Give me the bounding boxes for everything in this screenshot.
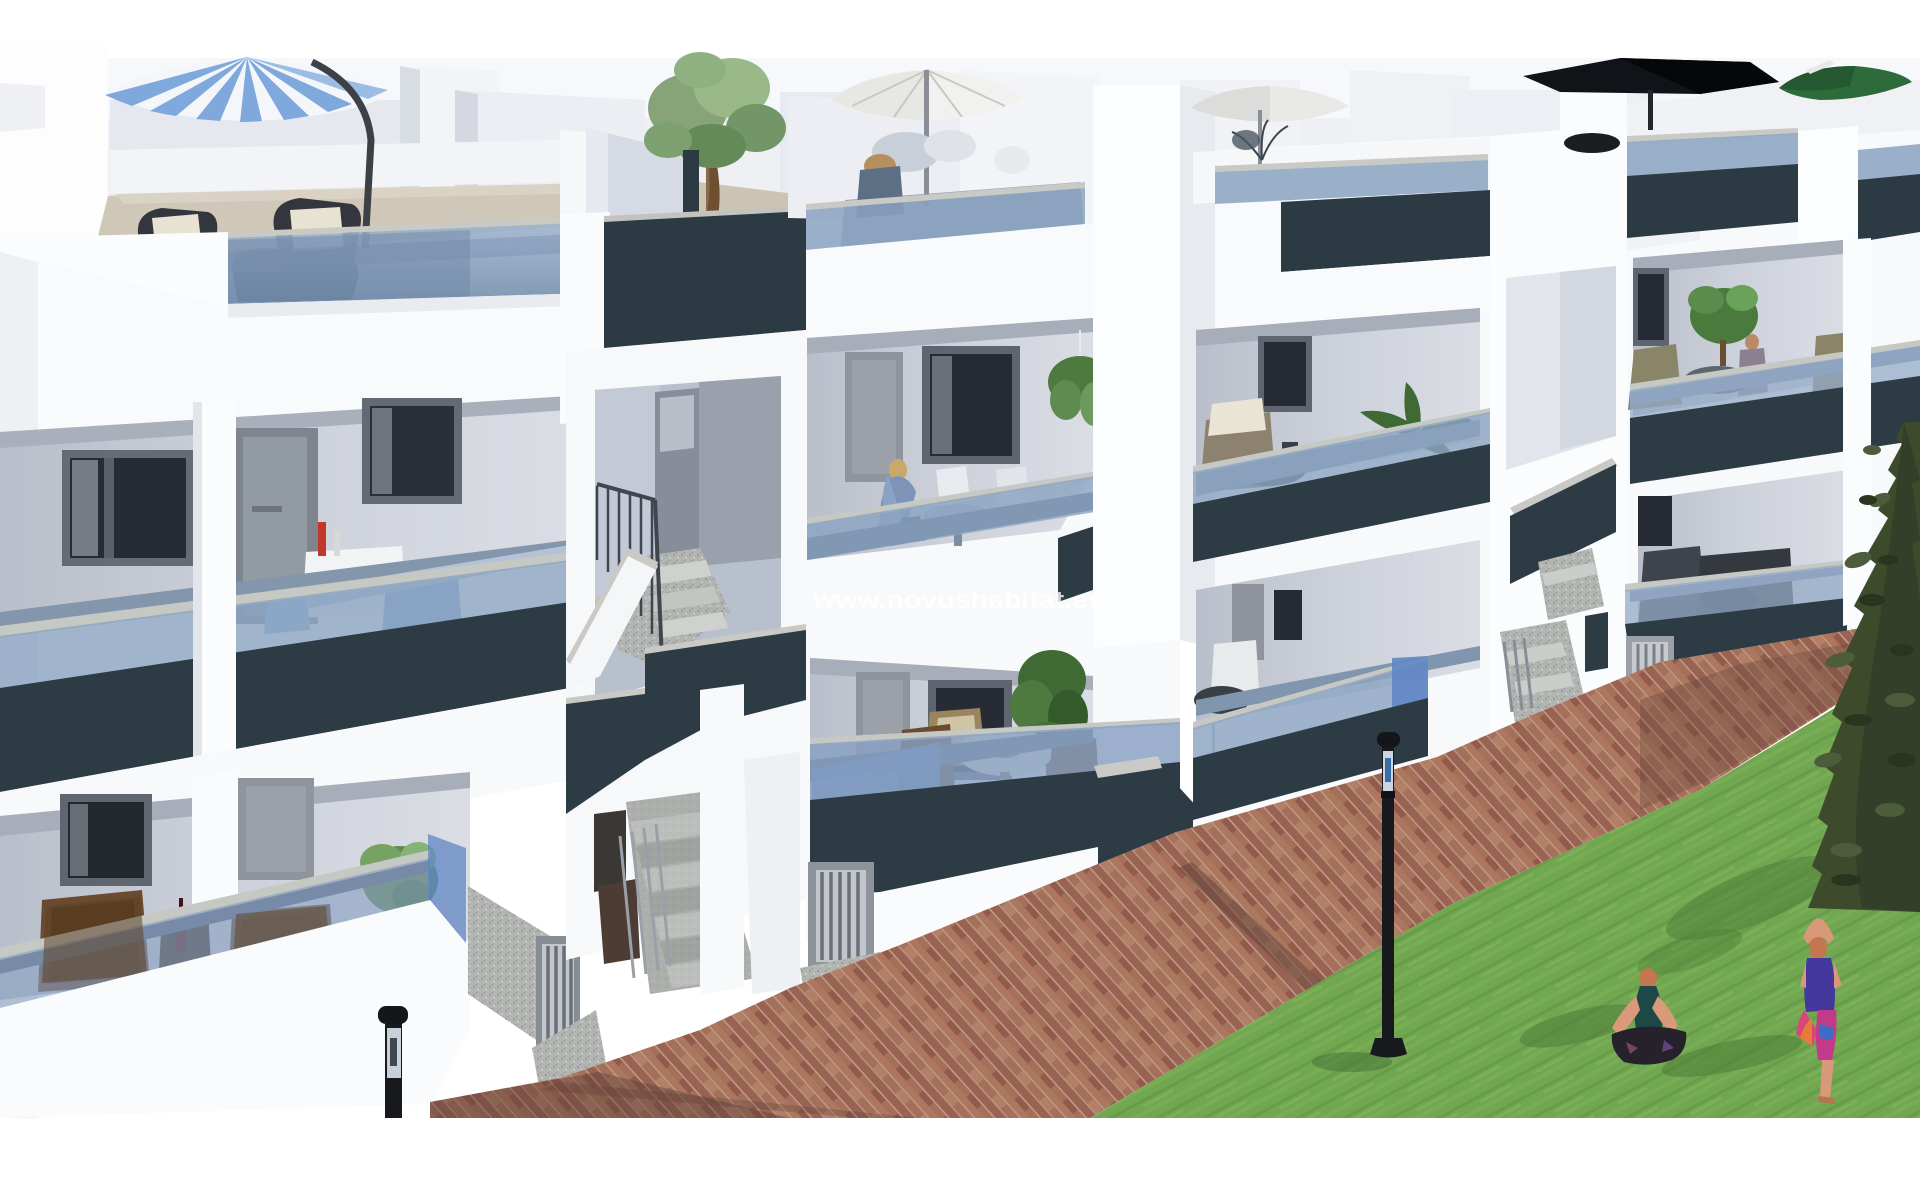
svg-text:www.novushabitat.es: www.novushabitat.es	[812, 587, 1104, 614]
